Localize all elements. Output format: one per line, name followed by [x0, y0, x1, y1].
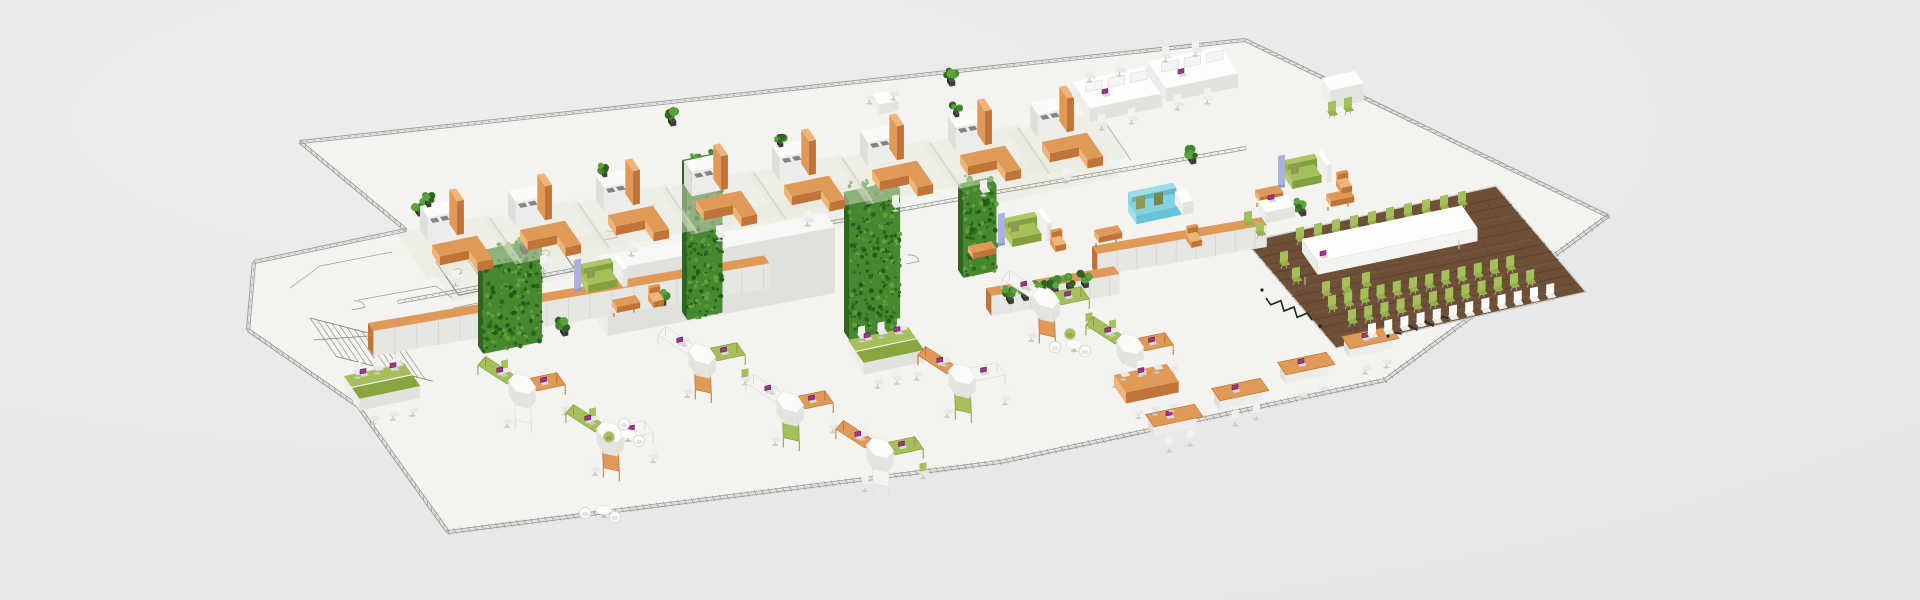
isometric-office-floorplan: [0, 0, 1920, 600]
office-render-stage: [0, 0, 1920, 600]
garden-wall: [958, 175, 999, 278]
